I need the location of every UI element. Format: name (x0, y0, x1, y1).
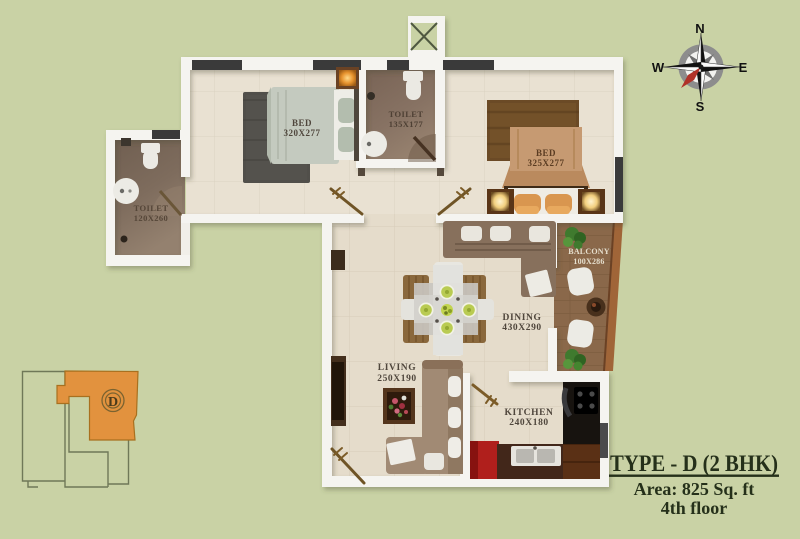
svg-text:100X286: 100X286 (573, 257, 604, 266)
svg-text:E: E (739, 60, 748, 75)
svg-text:KITCHEN: KITCHEN (504, 408, 553, 418)
svg-text:TOILET: TOILET (389, 109, 424, 119)
svg-text:240X180: 240X180 (509, 418, 549, 428)
svg-text:250X190: 250X190 (377, 374, 417, 384)
svg-text:325X277: 325X277 (528, 158, 565, 168)
svg-text:TOILET: TOILET (134, 203, 169, 213)
svg-text:135X177: 135X177 (389, 119, 424, 129)
svg-text:430X290: 430X290 (502, 323, 542, 333)
svg-text:S: S (696, 99, 705, 114)
svg-text:LIVING: LIVING (378, 363, 416, 373)
svg-text:Area: 825 Sq. ft: Area: 825 Sq. ft (634, 479, 755, 499)
svg-text:BALCONY: BALCONY (568, 247, 609, 256)
svg-text:120X260: 120X260 (134, 213, 168, 223)
svg-text:320X277: 320X277 (284, 128, 321, 138)
svg-text:D: D (108, 395, 118, 410)
svg-text:BED: BED (536, 148, 556, 158)
svg-text:W: W (652, 60, 665, 75)
svg-text:BED: BED (292, 118, 312, 128)
svg-text:4th floor: 4th floor (661, 498, 728, 518)
svg-text:N: N (695, 21, 704, 36)
svg-text:DINING: DINING (503, 313, 542, 323)
svg-text:TYPE - D (2 BHK): TYPE - D (2 BHK) (610, 451, 778, 476)
